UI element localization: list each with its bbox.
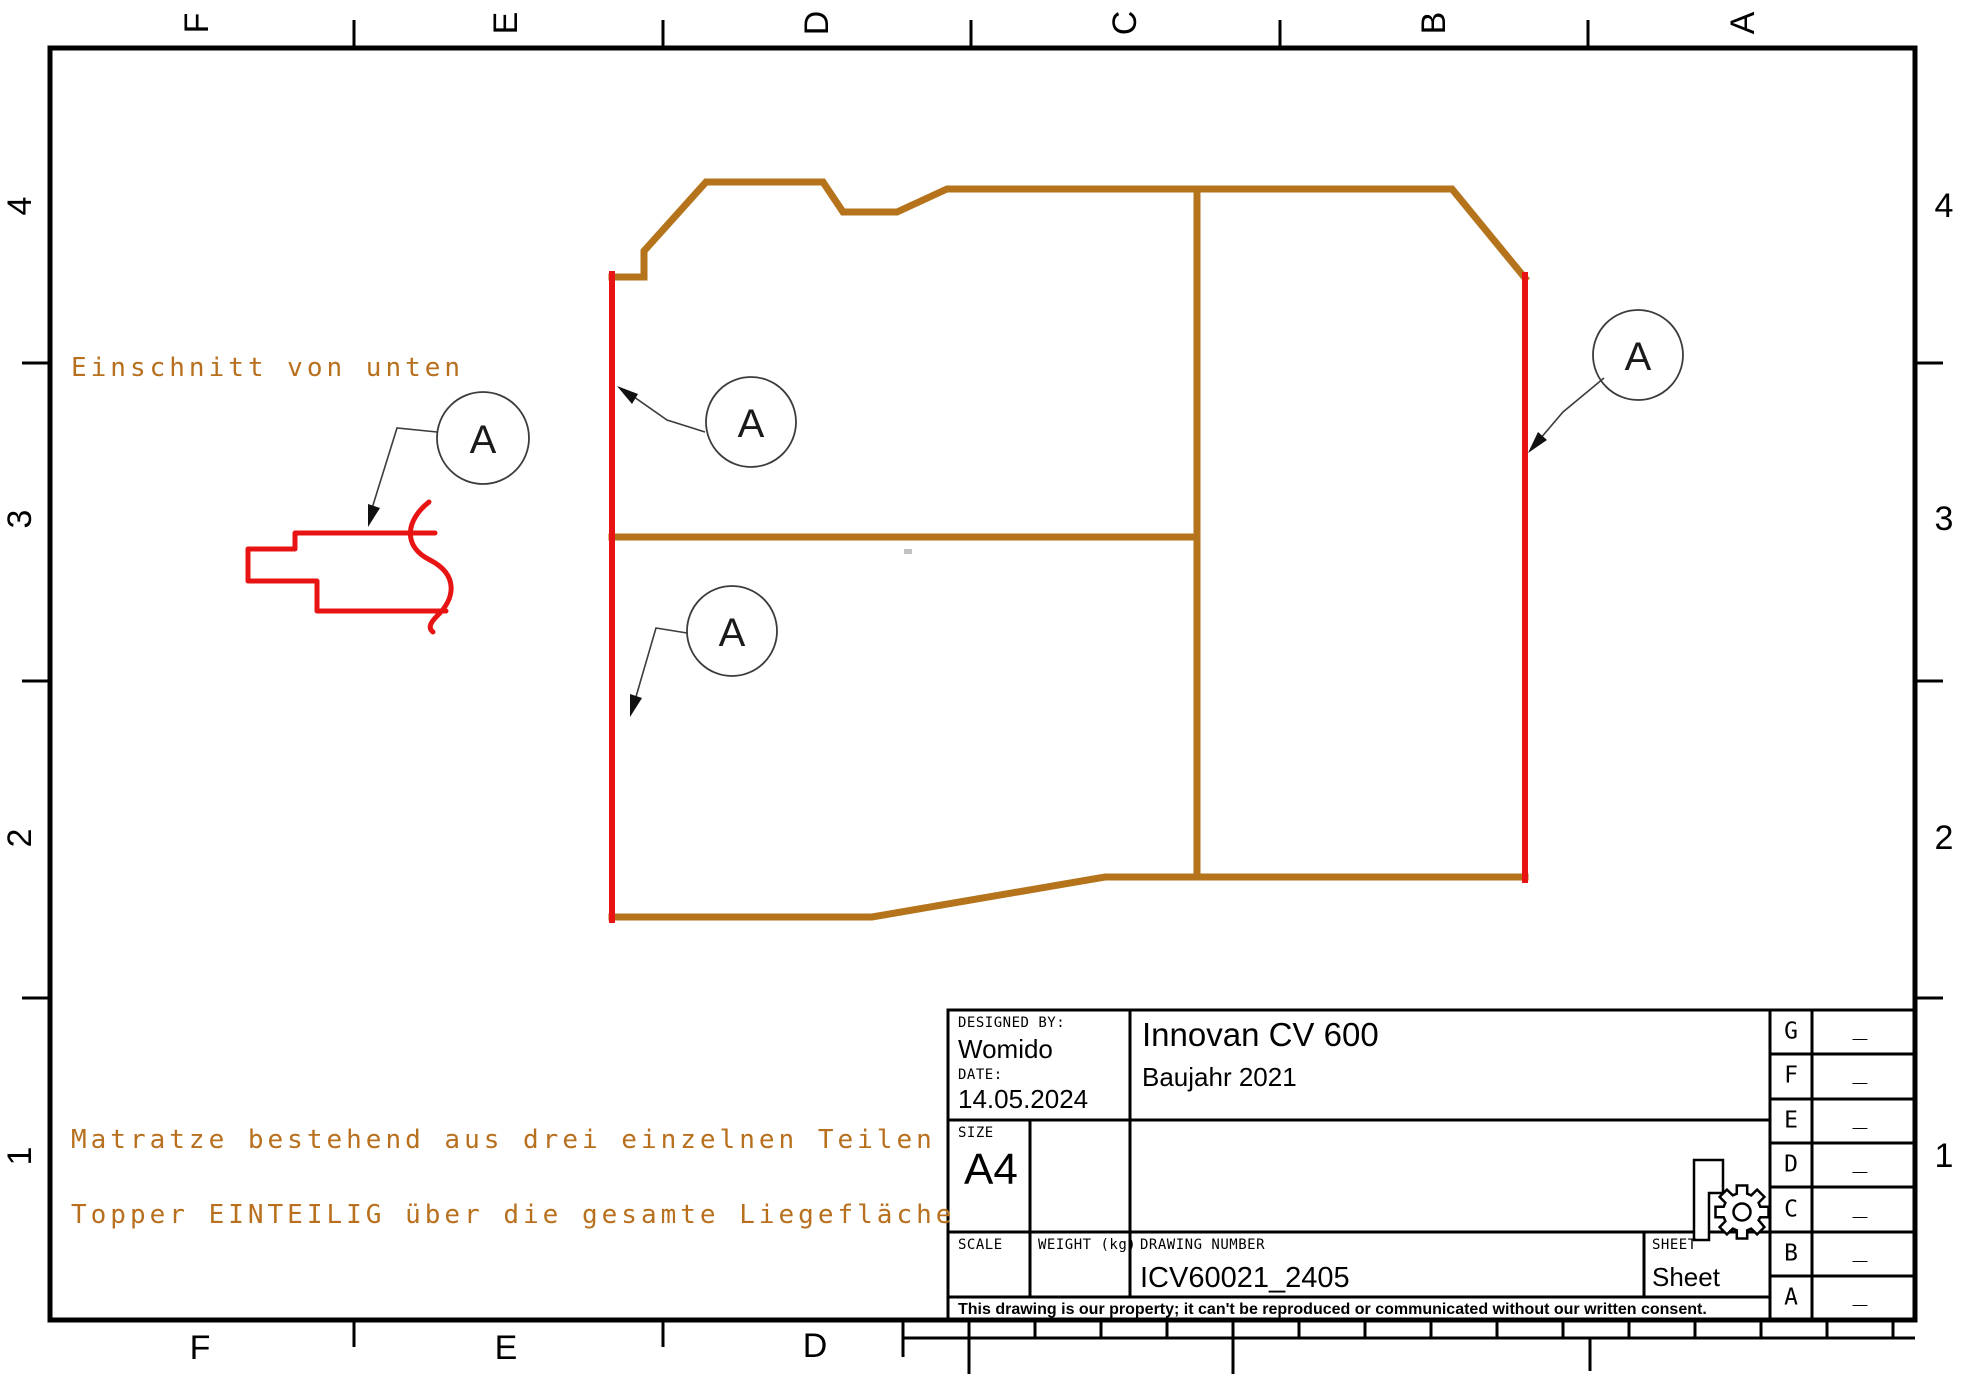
revision-value: _ [1853,1148,1867,1174]
center-mark [904,549,912,554]
grid-letter-bottom-d: D [803,1329,828,1363]
grid-number-left-4: 4 [3,197,37,216]
note-topper: Topper EINTEILIG über die gesamte Liegef… [71,1202,955,1228]
balloon-callouts [368,310,1683,717]
grid-letter-top-e: E [489,12,523,35]
balloon-label-right: A [1625,337,1652,377]
note-einschnitt: Einschnitt von unten [71,355,464,381]
balloon-label-detail: A [470,420,497,460]
size-value: A4 [964,1148,1018,1192]
ruler-strip [903,1320,1915,1374]
revision-letter: F [1784,1065,1798,1088]
revision-value: _ [1853,1193,1867,1219]
drawing-title: Innovan CV 600 [1142,1018,1379,1051]
balloon-label-upper-left: A [738,404,765,444]
sheet-label: SHEET [1652,1238,1697,1252]
grid-letter-top-f: F [180,13,214,34]
revision-letter: E [1784,1110,1798,1133]
revision-value: _ [1853,1059,1867,1085]
revision-value: _ [1853,1015,1867,1041]
grid-number-left-2: 2 [3,829,37,848]
revision-value: _ [1853,1104,1867,1130]
arrowhead-detail [368,504,380,527]
mattress-outline [612,182,1525,920]
revision-value: _ [1853,1281,1867,1307]
sheet-value: Sheet [1652,1264,1720,1290]
gear-logo-icon [1694,1160,1769,1240]
profile-outline [248,533,446,611]
leader-right [1534,378,1604,446]
date-label: DATE: [958,1068,1003,1082]
leader-upper-left [627,392,705,432]
designed-by-label: DESIGNED BY: [958,1016,1065,1030]
balloon-label-lower-left: A [719,613,746,653]
grid-letter-top-b: B [1417,12,1451,35]
grid-number-left-1: 1 [3,1147,37,1166]
grid-letter-top-c: C [1108,11,1142,36]
revision-letter: D [1784,1154,1798,1177]
drawing-subtitle: Baujahr 2021 [1142,1064,1297,1090]
date-value: 14.05.2024 [958,1086,1088,1112]
arrowhead-upper-left [617,386,638,404]
cad-drawing-sheet: F E D C B A F E D 4 3 2 1 4 3 2 1 A A A … [0,0,1969,1375]
grid-number-left-3: 3 [3,510,37,529]
grid-number-right-2: 2 [1935,821,1954,855]
arrowhead-lower-left [630,694,642,717]
designed-by-value: Womido [958,1036,1053,1062]
size-label: SIZE [958,1126,994,1140]
leader-lower-left [633,628,687,707]
title-block-grid [948,1010,1915,1320]
revision-value: _ [1853,1237,1867,1263]
disclaimer-text: This drawing is our property; it can't b… [958,1302,1707,1318]
grid-number-right-1: 1 [1935,1139,1954,1173]
grid-letter-bottom-f: F [190,1331,211,1365]
grid-letter-top-d: D [800,11,834,36]
mattress-bottom-edge [612,877,1525,917]
drawing-number-label: DRAWING NUMBER [1140,1238,1265,1252]
scale-label: SCALE [958,1238,1003,1252]
drawing-number-value: ICV60021_2405 [1140,1264,1350,1293]
grid-letter-top-a: A [1726,12,1760,35]
grid-number-right-3: 3 [1935,502,1954,536]
revision-letter: C [1784,1199,1798,1222]
revision-letter: B [1784,1243,1798,1266]
mattress-top-edge [612,182,1525,278]
note-matratze: Matratze bestehend aus drei einzelnen Te… [71,1127,936,1153]
grid-number-right-4: 4 [1935,189,1954,223]
revision-letter: A [1784,1287,1798,1310]
revision-letter: G [1784,1021,1798,1044]
cut-detail-profile [248,502,451,632]
weight-label: WEIGHT (kg) [1038,1238,1136,1252]
grid-letter-bottom-e: E [495,1331,518,1365]
